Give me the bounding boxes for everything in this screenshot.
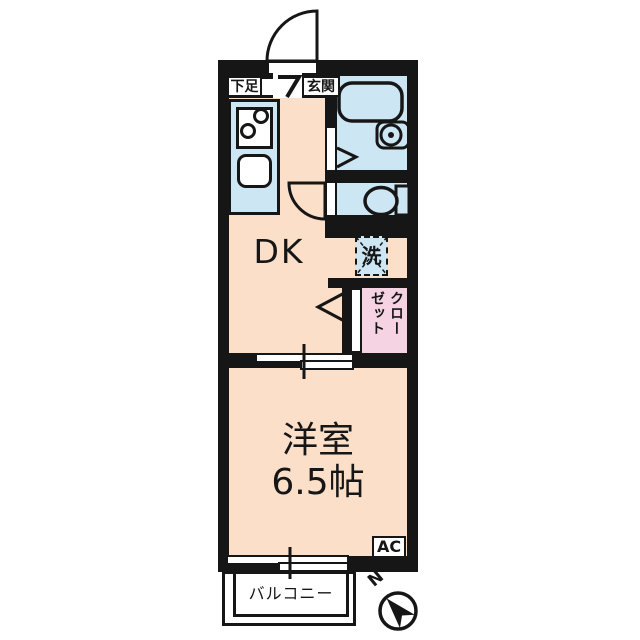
stove-icon [236,107,273,149]
entrance-door-arc-icon [267,11,317,61]
bathroom-floor [337,76,407,170]
wall-below-toilet [325,215,418,238]
washer-label: 洗 [355,236,388,276]
dk-label: DK [243,232,315,270]
wall-room-divider [218,353,418,368]
bath-door-opening [325,128,337,170]
main-room-label: 洋室 6.5帖 [229,420,407,504]
floorplan-canvas: AC [0,0,640,640]
wall-closet-stub [342,288,350,353]
toilet-door-opening [325,183,337,215]
shoe-storage-label: 下足 [231,80,259,94]
balcony-label: バルコニー [233,571,349,617]
entrance-label: 玄関 [307,80,335,94]
wall-closet-top [328,278,418,288]
compass-icon [379,592,416,629]
entrance-tag: 玄関 [302,76,340,97]
sink-icon [237,154,272,188]
room-size: 6.5帖 [229,462,407,504]
wall-bath-toilet [325,170,418,183]
room-name: 洋室 [229,420,407,462]
wall-bottom [218,556,418,572]
wall-right [407,60,418,572]
closet-door-panel [350,288,362,353]
closet-label: クロー ゼット [365,291,405,353]
shoe-storage-tag: 下足 [227,76,262,97]
entrance-opening [267,61,318,75]
ac-box: AC [372,536,406,558]
toilet-room-floor [337,183,407,215]
ac-label: AC [377,539,401,555]
wall-top [218,60,418,76]
